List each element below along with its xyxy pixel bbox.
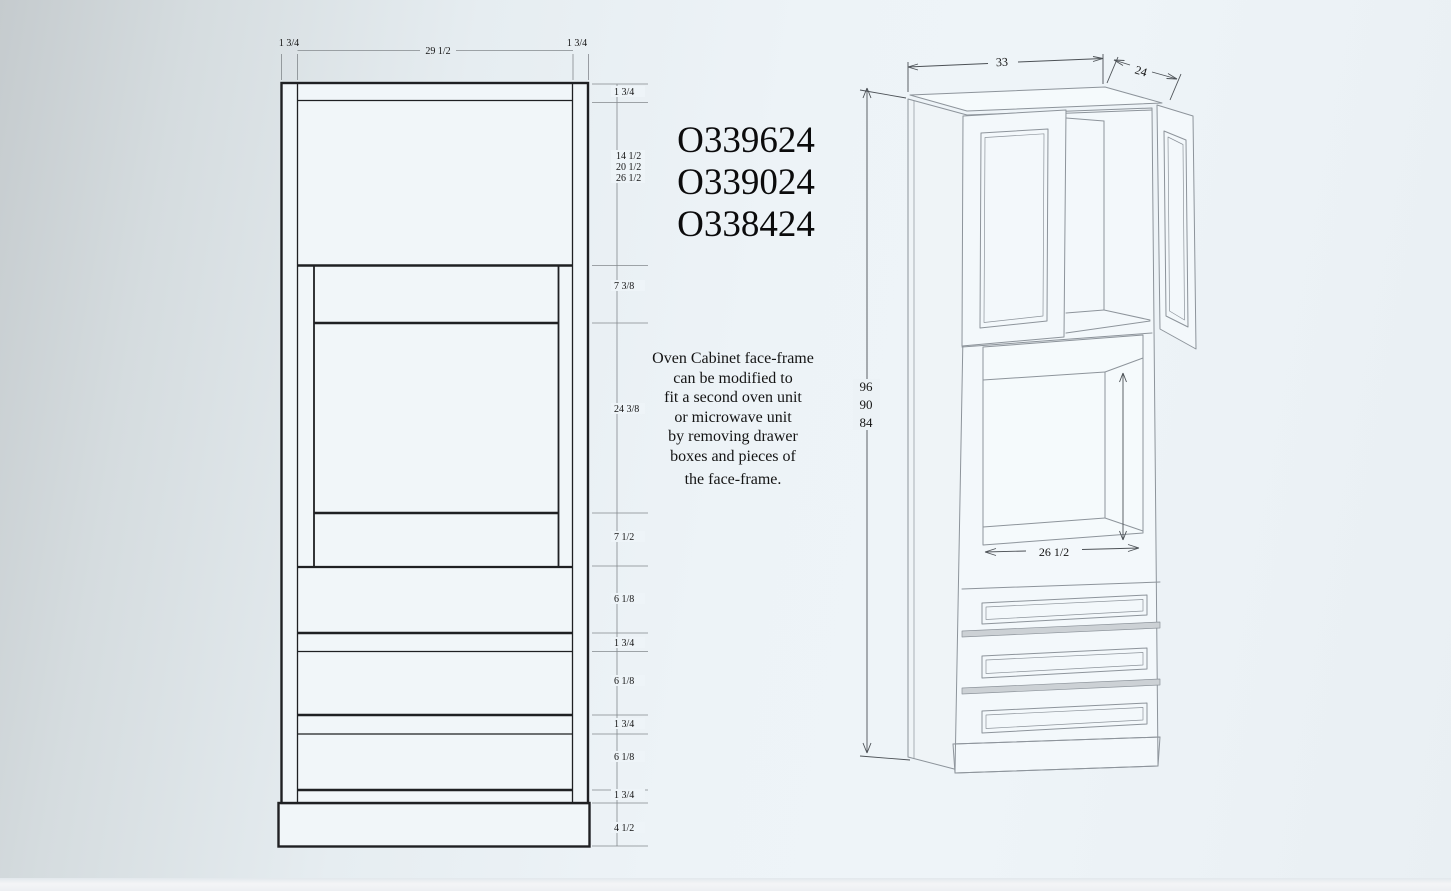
note-line: Oven Cabinet face-frame — [640, 349, 826, 369]
dim-drawer3: 6 1/8 — [614, 752, 634, 763]
dim-rail2: 1 3/4 — [614, 719, 634, 730]
iso-left-door — [962, 110, 1066, 346]
isometric-drawing: 33 24 96 90 84 26 1/2 — [840, 30, 1220, 790]
model-number: O339624 — [658, 120, 834, 162]
iso-right-door-open — [1157, 105, 1196, 349]
spec-sheet-page: { "title_models": { "m1": "O339624", "m2… — [0, 0, 1451, 891]
dim-bottom-rail: 1 3/4 — [614, 790, 634, 801]
dim-door-opening-90: 20 1/2 — [616, 162, 641, 173]
dim-iso-height-84: 84 — [860, 415, 874, 430]
dim-iso-depth: 24 — [1133, 63, 1149, 80]
front-elevation-drawing: 1 3/4 29 1/2 1 3/4 1 3/4 14 1/2 20 — [260, 20, 660, 860]
dim-oven-opening-height: 24 3/8 — [614, 404, 639, 415]
modification-note: Oven Cabinet face-frame can be modified … — [640, 349, 826, 489]
dim-oven-top-rail: 7 3/8 — [614, 281, 634, 292]
model-number: O338424 — [658, 204, 834, 246]
dim-drawer1: 6 1/8 — [614, 594, 634, 605]
dim-toe-kick: 4 1/2 — [614, 823, 634, 834]
note-line: by removing drawer — [640, 427, 826, 447]
dim-iso-width: 33 — [996, 55, 1009, 70]
dim-stile-left: 1 3/4 — [279, 38, 299, 49]
dim-iso-height-96: 96 — [860, 379, 874, 394]
dim-opening-width: 29 1/2 — [425, 46, 450, 57]
dim-drawer2: 6 1/8 — [614, 676, 634, 687]
dim-iso-opening-width: 26 1/2 — [1039, 545, 1069, 559]
model-number: O339024 — [658, 162, 834, 204]
note-line: boxes and pieces of — [640, 447, 826, 467]
dim-door-opening-84: 26 1/2 — [616, 173, 641, 184]
front-toe-kick — [279, 803, 590, 847]
dim-door-opening-96: 14 1/2 — [616, 151, 641, 162]
note-line: the face-frame. — [640, 470, 826, 490]
note-line: can be modified to — [640, 369, 826, 389]
note-line: fit a second oven unit — [640, 388, 826, 408]
dim-iso-height-90: 90 — [860, 397, 873, 412]
note-line: or microwave unit — [640, 408, 826, 428]
dim-top-rail: 1 3/4 — [614, 87, 634, 98]
model-number-list: O339624 O339024 O338424 — [658, 120, 834, 246]
front-face-frame — [282, 83, 589, 803]
dim-rail1: 1 3/4 — [614, 638, 634, 649]
page-floor-strip — [0, 878, 1451, 891]
dim-stile-right: 1 3/4 — [567, 38, 587, 49]
dim-oven-bottom-rail: 7 1/2 — [614, 532, 634, 543]
